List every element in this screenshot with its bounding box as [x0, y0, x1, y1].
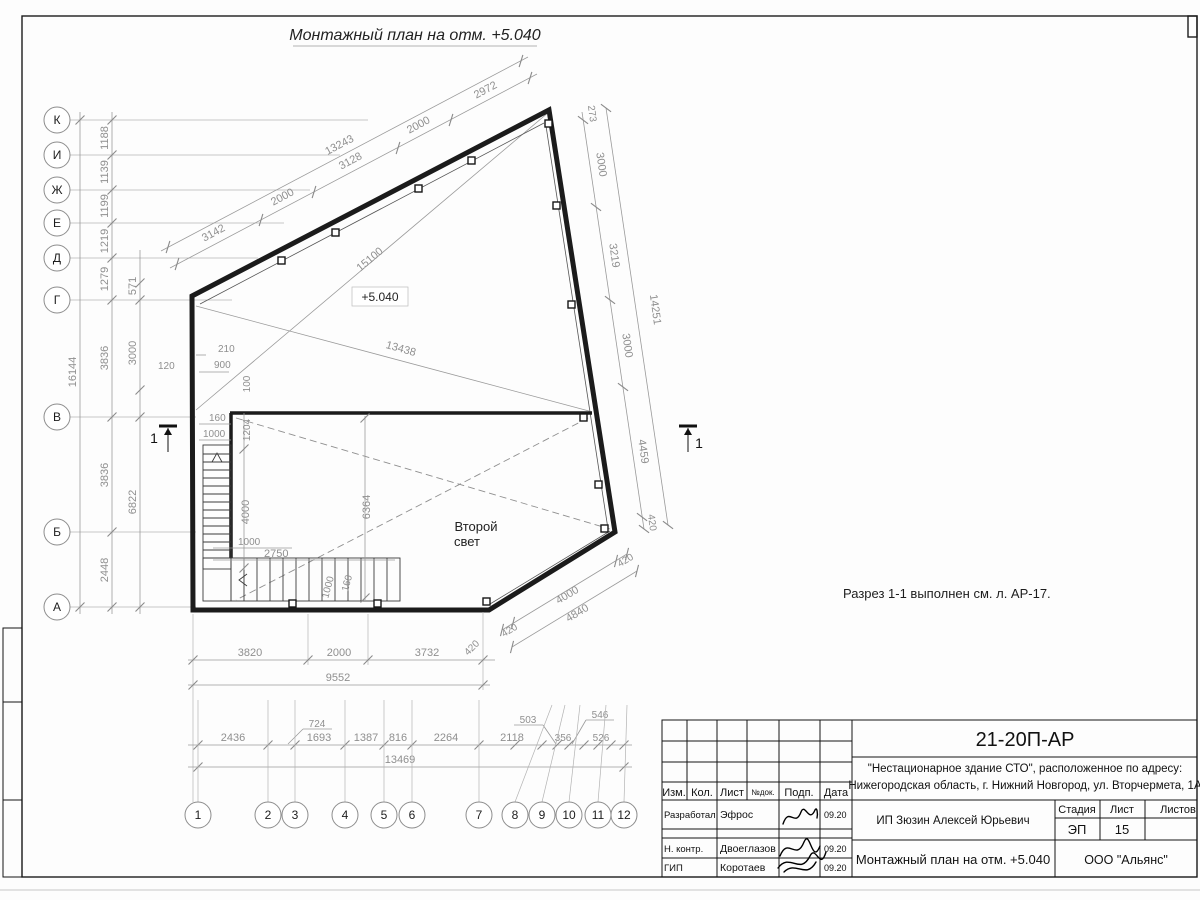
- dim-label: 571: [127, 277, 139, 295]
- dim-label: 3820: [238, 647, 262, 659]
- dim-label: 4840: [564, 602, 591, 625]
- dim-label: 2000: [269, 186, 296, 208]
- dim-label: 420: [616, 552, 636, 570]
- axis-label: 8: [512, 808, 519, 822]
- dim-label: 526: [593, 733, 610, 744]
- dim-label: 13469: [385, 754, 416, 766]
- dim-label: 546: [592, 710, 609, 721]
- role-label: Разработал: [664, 810, 716, 821]
- dim-label: 3000: [127, 341, 139, 365]
- dim-label: 3128: [337, 150, 364, 172]
- col-header: Подп.: [784, 787, 813, 799]
- dim-label: 1693: [307, 732, 331, 744]
- project-address-line2: Нижегородская область, г. Нижний Новгоро…: [848, 780, 1200, 792]
- role-label: Н. контр.: [664, 844, 703, 855]
- drawing-sheet: Монтажный план на отм. +5.040 К И Ж Е Д …: [0, 0, 1200, 900]
- dim-label: 2000: [327, 647, 351, 659]
- level-mark-value: +5.040: [361, 290, 398, 304]
- slope-dimensions: 3142 2000 3128 2000 2972 13243 15100 134…: [161, 55, 537, 359]
- axis-label: И: [53, 148, 62, 162]
- axis-label: 7: [476, 808, 483, 822]
- sign-date: 09.20: [824, 810, 847, 820]
- axis-label: В: [53, 410, 61, 424]
- dim-label: 1219: [99, 229, 111, 253]
- axis-label: Г: [54, 293, 61, 307]
- stair-upper-flight: [203, 445, 231, 569]
- stage-value: ЭП: [1068, 822, 1087, 837]
- axis-label: Ж: [51, 183, 62, 197]
- building-plan: +5.040 Второй свет: [192, 110, 615, 610]
- axis-label: 10: [562, 808, 576, 822]
- interior-dimensions: 210 900 100 160 1000 1204 4000 6364 1000…: [196, 344, 395, 603]
- role-label: ГИП: [664, 863, 683, 874]
- dim-label: 15100: [354, 245, 385, 274]
- axis-label: 12: [617, 808, 631, 822]
- room-label: Второй: [455, 519, 498, 534]
- dim-label: 14251: [647, 294, 663, 326]
- stair-direction-arrow: [239, 574, 247, 586]
- dim-label: 420: [462, 638, 482, 658]
- dim-label: 1279: [99, 267, 111, 291]
- person-name: Эфрос: [720, 809, 753, 821]
- column-markers: [278, 120, 608, 607]
- axis-label: 6: [409, 808, 416, 822]
- dim-label: 2448: [99, 558, 111, 582]
- dim-label: 1188: [99, 126, 111, 150]
- section-number: 1: [150, 430, 158, 446]
- dim-label: 6822: [127, 490, 139, 514]
- dim-label: 3836: [99, 463, 111, 487]
- dim-label: 3000: [593, 152, 608, 178]
- signatures: [778, 809, 826, 872]
- dim-label: 4000: [240, 500, 252, 524]
- dim-label: 2264: [434, 732, 458, 744]
- dim-label: 816: [389, 732, 407, 744]
- axis-label: Д: [53, 251, 61, 265]
- plan-title: Монтажный план на отм. +5.040: [289, 27, 541, 44]
- dim-label: 420: [500, 622, 520, 640]
- section-mark-right: 1: [679, 426, 703, 452]
- stair-lower-flight: [203, 558, 400, 601]
- dim-label: 1000: [203, 429, 226, 440]
- dim-label: 1000: [238, 537, 261, 548]
- dim-label: 4459: [635, 439, 650, 465]
- dim-label: 3836: [99, 346, 111, 370]
- axis-label: А: [53, 600, 61, 614]
- axis-label: 2: [265, 808, 272, 822]
- bottom-dimensions: 3820 2000 3732 420 9552 2436 1693 1387 8…: [188, 612, 632, 802]
- col-header: №док.: [751, 788, 774, 797]
- dim-label: 273: [585, 105, 598, 123]
- dim-label: 503: [520, 715, 537, 726]
- dim-label: 2750: [264, 548, 288, 560]
- corner-doc-box: [1188, 16, 1197, 37]
- dim-label: 3142: [200, 222, 227, 244]
- dim-label: 724: [309, 719, 326, 730]
- left-axis-grid: К И Ж Е Д Г В Б А 16144 1188 1139 1199 1…: [44, 107, 368, 620]
- dim-label: 900: [214, 360, 231, 371]
- dim-label: 1387: [354, 732, 378, 744]
- dim-label: 9552: [326, 672, 350, 684]
- dim-label: 120: [158, 361, 175, 372]
- signature-rows: Разработал Эфрос 09.20 Н. контр. Двоегла…: [664, 809, 847, 874]
- company-name: ООО "Альянс": [1084, 853, 1168, 867]
- dim-label: 160: [209, 413, 226, 424]
- col-header: Кол.: [691, 787, 713, 799]
- dim-label: 1000: [320, 575, 336, 600]
- axis-label: К: [54, 113, 61, 127]
- axis-label: Е: [53, 216, 61, 230]
- sheet-title: Монтажный план на отм. +5.040: [856, 852, 1050, 867]
- person-name: Двоеглазов: [720, 843, 776, 855]
- person-name: Коротаев: [720, 862, 766, 874]
- dim-label: 3219: [606, 243, 621, 269]
- col-header: Изм.: [662, 787, 686, 799]
- dim-label: 3732: [415, 647, 439, 659]
- sign-date: 09.20: [824, 863, 847, 873]
- dim-label: 2000: [405, 114, 432, 136]
- axis-label: Б: [53, 525, 61, 539]
- dim-label: 420: [645, 514, 658, 532]
- dim-label: 210: [218, 344, 235, 355]
- left-dim-labels: 16144 1188 1139 1199 1219 1279 3836 3836…: [67, 126, 175, 582]
- dim-label: 1139: [99, 160, 111, 184]
- dim-label: 13438: [384, 339, 417, 359]
- dim-label: 100: [242, 375, 253, 392]
- section-number: 1: [695, 435, 703, 451]
- project-address-line1: "Нестационарное здание СТО", расположенн…: [868, 763, 1183, 775]
- sheet-frame: [0, 16, 1200, 890]
- dim-label: 6364: [361, 495, 373, 519]
- dim-label: 2972: [472, 79, 499, 101]
- sheet-number: 15: [1115, 822, 1129, 837]
- right-dimensions: 273 3000 3219 3000 4459 420 14251: [578, 103, 673, 534]
- axis-label: 3: [292, 808, 299, 822]
- stage-header: Стадия: [1058, 804, 1096, 816]
- change-table-headers: Изм. Кол. Лист №док. Подп. Дата: [662, 787, 849, 799]
- axis-label: 4: [342, 808, 349, 822]
- dim-label: 2436: [221, 732, 245, 744]
- dim-label: 4000: [554, 584, 581, 607]
- dim-label: 3000: [619, 333, 634, 359]
- col-header: Дата: [824, 787, 849, 799]
- axis-label: 11: [592, 808, 605, 822]
- dim-label: 2118: [500, 732, 524, 744]
- sheets-header: Листов: [1160, 804, 1196, 816]
- sign-date: 09.20: [824, 844, 847, 854]
- client-name: ИП Зюзин Алексей Юрьевич: [876, 815, 1029, 827]
- section-mark-left: 1: [150, 426, 177, 452]
- room-label: свет: [454, 534, 480, 549]
- dim-label: 160: [340, 573, 355, 592]
- dim-label: 1199: [99, 194, 111, 218]
- axis-label: 9: [539, 808, 546, 822]
- level-mark: +5.040: [352, 287, 408, 306]
- bottom-right-wall-dimensions: 420 4000 420 4840: [496, 548, 643, 653]
- title-block: Изм. Кол. Лист №док. Подп. Дата Разработ…: [662, 720, 1200, 877]
- section-note: Разрез 1-1 выполнен см. л. АР-17.: [843, 586, 1051, 601]
- axis-label: 5: [381, 808, 388, 822]
- col-header: Лист: [720, 787, 744, 799]
- dim-label: 1204: [242, 418, 253, 441]
- page-title: Монтажный план на отм. +5.040: [289, 27, 541, 46]
- sheet-header: Лист: [1110, 804, 1134, 816]
- dim-label: 16144: [67, 357, 79, 388]
- left-stamp-strip: [3, 628, 22, 877]
- document-number: 21-20П-АР: [976, 729, 1075, 751]
- axis-label: 1: [195, 808, 202, 822]
